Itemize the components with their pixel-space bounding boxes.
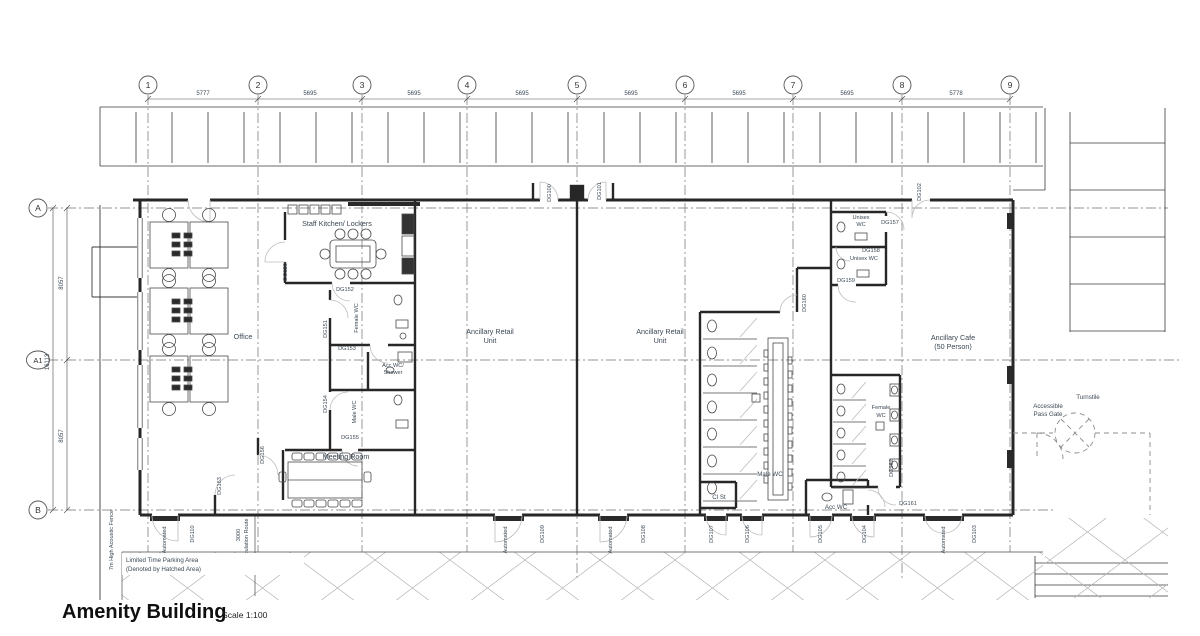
locker (402, 236, 414, 256)
desk-unit (172, 233, 180, 238)
tap (788, 357, 792, 364)
desk (190, 288, 228, 334)
label-acoustic-fence: 7m High Acoustic Fence (109, 510, 115, 570)
grid-col-2: 2 (256, 80, 261, 90)
label-retail-1-line1: Ancillary Retail (466, 327, 514, 336)
tap (764, 420, 768, 427)
chair (348, 229, 358, 239)
chair (292, 453, 302, 460)
wc-fixtures-static (386, 222, 884, 504)
label-turnstile: Turnstile (1076, 394, 1100, 401)
stall-door (852, 426, 866, 442)
chair (304, 500, 314, 507)
tap (788, 427, 792, 434)
toilet (708, 401, 717, 413)
dim-4-5: 5695 (515, 91, 529, 97)
chair (335, 269, 345, 279)
tap (764, 462, 768, 469)
tag-dg104: DG104 (862, 525, 868, 543)
tag-dg100: DG100 (547, 184, 553, 202)
label-male-wc-left: Male WC (352, 401, 358, 424)
chair (292, 500, 302, 507)
grid-col-8: 8 (900, 80, 905, 90)
label-gate-line2: Pass Gate (1034, 411, 1063, 418)
tag-dg158: DG158 (862, 248, 880, 254)
grid-col-3: 3 (360, 80, 365, 90)
tap (764, 350, 768, 357)
basin (892, 411, 898, 419)
parking-note: Limited Time Parking Area (Denoted by Ha… (122, 553, 304, 575)
tap (788, 385, 792, 392)
chair (376, 249, 386, 259)
desk-unit (184, 251, 192, 256)
toilet (708, 428, 717, 440)
chair (304, 453, 314, 460)
desk-unit (172, 251, 180, 256)
desk-unit (172, 376, 180, 381)
grid-col-6: 6 (683, 80, 688, 90)
desk-unit (184, 376, 192, 381)
toilet (708, 482, 717, 494)
chair (163, 335, 176, 348)
tag-automated-4: Automated (941, 526, 947, 553)
chair (320, 249, 330, 259)
toilet (708, 347, 717, 359)
floor-plan-page: 1 2 3 4 5 6 7 8 9 A A1 B 5777 5695 5695 … (0, 0, 1200, 636)
label-cafe-line2: (50 Person) (934, 342, 972, 351)
chair (203, 343, 216, 356)
title-text: Amenity Building (62, 601, 226, 623)
desk (190, 222, 228, 268)
tag-dg152: DG152 (336, 287, 354, 293)
dim-3-4: 5695 (407, 91, 421, 97)
chair (352, 500, 362, 507)
kitchen-counter (299, 205, 308, 214)
label-staff-kitchen: Staff Kitchen/ Lockers (302, 219, 372, 228)
tag-dg156: DG156 (260, 446, 266, 464)
chair (335, 229, 345, 239)
tag-dg101: DG101 (597, 182, 603, 200)
tag-dg159: DG159 (837, 278, 855, 284)
chair (163, 209, 176, 222)
stall-door (740, 453, 757, 472)
floor-plan-drawing: 1 2 3 4 5 6 7 8 9 A A1 B 5777 5695 5695 … (0, 0, 1200, 636)
locker (402, 258, 414, 274)
tag-dg110: DG110 (190, 525, 196, 542)
dim-2-3: 5695 (303, 91, 317, 97)
kitchen-counter (288, 205, 297, 214)
tag-dg108: DG108 (641, 525, 647, 543)
tap (764, 392, 768, 399)
toilet (708, 455, 717, 467)
tap (788, 413, 792, 420)
chair (340, 500, 350, 507)
kitchen-table (330, 240, 376, 268)
grid-bubble-labels: 1 2 3 4 5 6 7 8 9 A A1 B (33, 80, 1012, 515)
stall-door (852, 382, 866, 398)
tag-dg109: DG109 (540, 525, 546, 543)
label-unisex-1-line1: Unisex (852, 215, 869, 221)
chair (163, 343, 176, 356)
desk-unit (184, 308, 192, 313)
chair (203, 275, 216, 288)
desk (150, 288, 188, 334)
basin (892, 436, 898, 444)
stall-door (852, 404, 866, 420)
grid-col-5: 5 (575, 80, 580, 90)
toilet (837, 384, 845, 394)
tag-automated-3: Automated (608, 526, 614, 553)
chair (361, 269, 371, 279)
tag-dg107: DG107 (709, 525, 715, 543)
chair (364, 472, 371, 482)
tap (764, 378, 768, 385)
tag-dg105: DG105 (818, 525, 824, 543)
grid-bubbles (27, 76, 1020, 519)
dim-a1-b: 8057 (59, 429, 65, 443)
desk (150, 356, 188, 402)
tag-dg155: DG155 (341, 435, 359, 441)
chair (203, 209, 216, 222)
stall-door (740, 318, 757, 337)
chair (316, 500, 326, 507)
tap (788, 455, 792, 462)
stall-door (740, 345, 757, 364)
tag-dg153: DG153 (338, 346, 356, 352)
grid-row-a: A (35, 203, 41, 213)
desk-unit (172, 317, 180, 322)
stall-door (740, 480, 757, 499)
tag-automated-2: Automated (503, 526, 509, 553)
chair (203, 403, 216, 416)
grid-col-1: 1 (146, 80, 151, 90)
tag-dg150: DG150 (283, 263, 289, 281)
parking-row-top (100, 107, 1043, 166)
desk-unit (184, 367, 192, 372)
tap (788, 441, 792, 448)
stall-door (852, 448, 866, 464)
label-parking-line2: (Denoted by Hatched Area) (126, 566, 201, 573)
tag-dg160: DG160 (802, 294, 808, 312)
label-male-wc: Male WC (757, 471, 783, 478)
tap (788, 469, 792, 476)
basin (892, 386, 898, 394)
tag-dg102: DG102 (917, 183, 923, 201)
tag-dg157: DG157 (881, 220, 899, 226)
label-female-wc-line1: Female (872, 405, 891, 411)
chair (163, 403, 176, 416)
kitchen-table-inner (336, 246, 370, 262)
tag-dg162: DG162 (889, 459, 895, 477)
chair (328, 500, 338, 507)
dim-7-8: 5695 (840, 91, 854, 97)
tag-circ-dim: 3000 (236, 529, 242, 541)
label-office: Office (234, 332, 253, 341)
desk-unit (172, 308, 180, 313)
label-retail-2-line2: Unit (654, 336, 667, 345)
chair (348, 269, 358, 279)
label-retail-2-line1: Ancillary Retail (636, 327, 684, 336)
dim-1-2: 5777 (196, 91, 210, 97)
drawing-title: Amenity Building Scale 1:100 (62, 601, 268, 623)
label-acc-wc-shower-2: Shower (384, 370, 403, 376)
tap (764, 448, 768, 455)
dim-6-7: 5695 (732, 91, 746, 97)
grid-col-4: 4 (465, 80, 470, 90)
desk-unit (184, 233, 192, 238)
desk (190, 356, 228, 402)
desk-unit (184, 299, 192, 304)
label-cl-st: Cl St (712, 494, 726, 501)
tap (764, 434, 768, 441)
dim-total: 16113 (45, 353, 51, 370)
stall-door (740, 426, 757, 445)
label-acc-wc: Acc WC (825, 504, 848, 511)
label-cafe-line1: Ancillary Cafe (931, 333, 975, 342)
desk-unit (184, 385, 192, 390)
label-acc-wc-shower-1: Acc WC/ (382, 363, 404, 369)
desk-unit (172, 385, 180, 390)
desk-unit (184, 317, 192, 322)
chair (203, 269, 216, 282)
kitchen-counter (321, 205, 330, 214)
tap (764, 364, 768, 371)
tag-dg103: DG103 (972, 525, 978, 543)
chair (203, 335, 216, 348)
tag-dg161: DG161 (899, 501, 917, 507)
tap (788, 371, 792, 378)
dim-a-a1: 8057 (59, 276, 65, 290)
dimension-lines (50, 96, 1013, 513)
toilet (708, 320, 717, 332)
grid-col-7: 7 (791, 80, 796, 90)
toilet (837, 428, 845, 438)
chair (163, 275, 176, 288)
label-unisex-2: Unisex WC (850, 256, 878, 262)
chair (163, 269, 176, 282)
label-gate-line1: Accessible (1033, 403, 1063, 410)
interior-walls (215, 183, 900, 515)
desk-unit (184, 242, 192, 247)
tag-dg106: DG106 (745, 525, 751, 543)
kitchen-counter (310, 205, 319, 214)
desk-unit (172, 299, 180, 304)
label-parking-line1: Limited Time Parking Area (126, 557, 199, 564)
toilet (708, 374, 717, 386)
stall-door (740, 372, 757, 391)
dim-8-9: 5778 (949, 91, 963, 97)
desk-unit (172, 367, 180, 372)
grid-col-9: 9 (1008, 80, 1013, 90)
tap (764, 406, 768, 413)
kitchen-counter (332, 205, 341, 214)
turnstile-gate (1013, 413, 1150, 515)
label-retail-1-line2: Unit (484, 336, 497, 345)
label-meeting-room: Meeting Room (323, 452, 370, 461)
title-scale: Scale 1:100 (222, 610, 268, 620)
locker (402, 214, 414, 234)
tap (788, 483, 792, 490)
tag-dg151: DG151 (323, 320, 329, 338)
label-unisex-1-line2: WC (856, 222, 865, 228)
label-female-wc-left: Female WC (354, 303, 360, 333)
tag-dg163: DG163 (217, 477, 223, 495)
tag-automated-1: Automated (162, 526, 168, 553)
label-female-wc-line2: WC (876, 413, 885, 419)
chair (361, 229, 371, 239)
tap (788, 399, 792, 406)
grid-lines (48, 95, 1180, 580)
dim-5-6: 5695 (624, 91, 638, 97)
toilet (837, 406, 845, 416)
tag-dg154: DG154 (323, 395, 329, 413)
desk-unit (172, 242, 180, 247)
grid-row-b: B (35, 505, 41, 515)
stall-door (852, 470, 866, 486)
desk (150, 222, 188, 268)
grid-row-a1: A1 (33, 356, 42, 365)
toilet (837, 450, 845, 460)
